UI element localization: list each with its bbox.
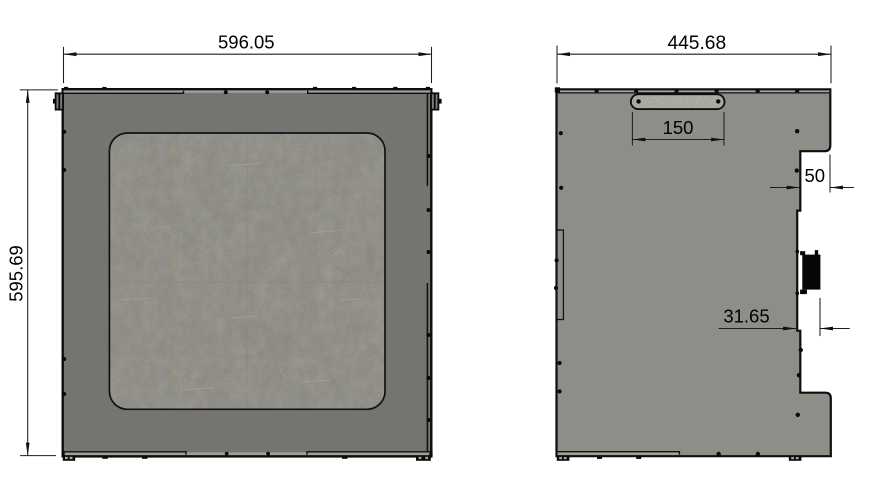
svg-text:596.05: 596.05 bbox=[218, 31, 275, 52]
svg-text:31.65: 31.65 bbox=[723, 305, 769, 326]
svg-text:595.69: 595.69 bbox=[6, 245, 27, 302]
svg-text:150: 150 bbox=[663, 117, 694, 138]
svg-text:50: 50 bbox=[805, 165, 826, 186]
svg-text:445.68: 445.68 bbox=[667, 33, 726, 54]
